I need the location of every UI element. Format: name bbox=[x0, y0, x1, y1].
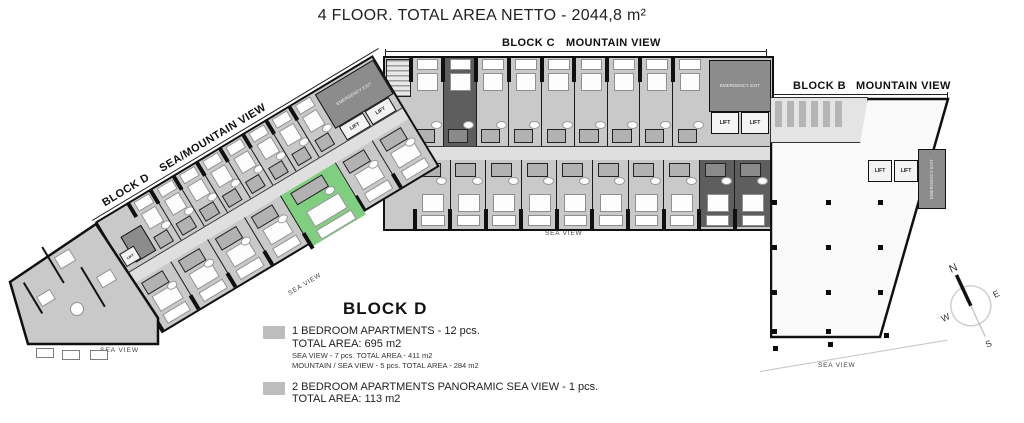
bathroom bbox=[527, 163, 548, 177]
apartment-unit bbox=[508, 58, 541, 146]
legend-line: 1 BEDROOM APARTMENTS - 12 pcs. bbox=[292, 325, 480, 338]
bathroom bbox=[705, 163, 726, 177]
unit-number-badge bbox=[529, 121, 540, 129]
legend-swatch bbox=[263, 326, 285, 339]
bed bbox=[671, 194, 693, 212]
legend-title: BLOCK D bbox=[343, 299, 683, 319]
column bbox=[878, 200, 883, 205]
legend-subline: MOUNTAIN / SEA VIEW - 5 pcs. TOTAL AREA … bbox=[292, 361, 480, 372]
bathroom bbox=[481, 129, 500, 143]
unit-number-badge bbox=[757, 177, 768, 185]
apartment-unit bbox=[639, 58, 672, 146]
unit-number-badge bbox=[686, 177, 697, 185]
lift-label: LIFT bbox=[875, 168, 886, 174]
unit-number-badge bbox=[693, 121, 704, 129]
compass-icon: N S E W bbox=[928, 256, 1012, 352]
balcony bbox=[515, 59, 537, 70]
block-c-bottom-unit-row bbox=[415, 160, 770, 227]
bed bbox=[458, 194, 480, 212]
bathroom bbox=[669, 163, 690, 177]
bed bbox=[600, 194, 622, 212]
unit-number-badge bbox=[472, 177, 483, 185]
compass-north-label: N bbox=[947, 262, 959, 276]
lift-label: LIFT bbox=[720, 120, 731, 126]
column bbox=[878, 245, 883, 250]
bathroom bbox=[455, 163, 476, 177]
lift: LIFT bbox=[894, 160, 918, 182]
balcony bbox=[742, 215, 765, 226]
column bbox=[826, 200, 831, 205]
block-b-view-label: MOUNTAIN VIEW bbox=[856, 80, 951, 92]
bed bbox=[564, 194, 586, 212]
lift-label: LIFT bbox=[349, 121, 361, 132]
emergency-exit-room: EMERGENCY EXIT bbox=[709, 60, 771, 112]
page-title: 4 FLOOR. TOTAL AREA NETTO - 2044,8 m² bbox=[0, 7, 964, 25]
bed bbox=[548, 73, 568, 91]
bed bbox=[647, 73, 667, 91]
balcony bbox=[646, 59, 668, 70]
balcony bbox=[528, 215, 551, 226]
block-c-sea-view-label: SEA VIEW bbox=[545, 230, 582, 237]
unit-number-badge bbox=[721, 177, 732, 185]
lift: LIFT bbox=[868, 160, 892, 182]
compass-east-label: E bbox=[991, 288, 1001, 300]
block-d-west-wing bbox=[8, 222, 160, 346]
balcony bbox=[450, 59, 472, 70]
block-c-view-label: MOUNTAIN VIEW bbox=[566, 37, 661, 49]
balcony bbox=[635, 215, 658, 226]
apartment-unit bbox=[574, 58, 607, 146]
balcony bbox=[548, 59, 570, 70]
bed bbox=[742, 194, 764, 212]
bathroom bbox=[740, 163, 761, 177]
lift: LIFT bbox=[711, 112, 739, 134]
unit-number-badge bbox=[463, 121, 474, 129]
bed bbox=[422, 194, 444, 212]
bed bbox=[450, 73, 470, 91]
unit-number-badge bbox=[650, 177, 661, 185]
block-c-top-unit-row bbox=[411, 58, 705, 146]
unit-number-badge bbox=[431, 121, 442, 129]
unit-number-badge bbox=[660, 121, 671, 129]
compass-west-label: W bbox=[940, 311, 952, 324]
balcony bbox=[581, 59, 603, 70]
apartment-unit bbox=[592, 160, 628, 227]
column bbox=[773, 346, 778, 351]
apartment-unit bbox=[628, 160, 664, 227]
balcony bbox=[679, 59, 701, 70]
emergency-exit-room: EMERGENCY EXIT bbox=[918, 149, 946, 209]
column bbox=[878, 290, 883, 295]
apartment-unit bbox=[476, 58, 509, 146]
floor-plan-canvas: 4 FLOOR. TOTAL AREA NETTO - 2044,8 m² BL… bbox=[0, 0, 1024, 423]
balcony bbox=[421, 215, 444, 226]
column bbox=[828, 342, 833, 347]
block-c-name: BLOCK C bbox=[502, 37, 555, 49]
block-c-bracket-line bbox=[385, 51, 767, 52]
legend-subline: SEA VIEW - 7 pcs. TOTAL AREA - 411 m2 bbox=[292, 351, 480, 362]
apartment-unit bbox=[485, 160, 521, 227]
apartment-unit bbox=[443, 58, 476, 146]
bed bbox=[417, 73, 437, 91]
apartment-unit bbox=[556, 160, 592, 227]
balcony bbox=[670, 215, 693, 226]
bathroom bbox=[514, 129, 533, 143]
balcony bbox=[492, 215, 515, 226]
apartment-unit bbox=[734, 160, 770, 227]
bed bbox=[707, 194, 729, 212]
column bbox=[772, 200, 777, 205]
bed bbox=[614, 73, 634, 91]
column bbox=[826, 290, 831, 295]
block-b-bracket-line bbox=[772, 94, 948, 95]
balcony bbox=[599, 215, 622, 226]
unit-number-badge bbox=[496, 121, 507, 129]
bed bbox=[581, 73, 601, 91]
emergency-exit-label: EMERGENCY EXIT bbox=[929, 159, 934, 199]
block-b-sea-view-label: SEA VIEW bbox=[818, 362, 855, 369]
bed bbox=[680, 73, 700, 91]
bathroom bbox=[678, 129, 697, 143]
block-b-building: ADMINISTRATION LIFT LIFT EMERGENCY EXIT bbox=[770, 97, 950, 339]
column bbox=[826, 245, 831, 250]
apartment-unit bbox=[699, 160, 735, 227]
unit-number-badge bbox=[579, 177, 590, 185]
balcony bbox=[613, 59, 635, 70]
bathroom bbox=[562, 163, 583, 177]
unit-number-badge bbox=[614, 177, 625, 185]
bed bbox=[516, 73, 536, 91]
office-desks bbox=[775, 101, 847, 127]
unit-number-badge bbox=[508, 177, 519, 185]
bed bbox=[635, 194, 657, 212]
legend-line: 2 BEDROOM APARTMENTS PANORAMIC SEA VIEW … bbox=[292, 381, 598, 394]
apartment-unit bbox=[541, 58, 574, 146]
legend-item-1br: 1 BEDROOM APARTMENTS - 12 pcs. TOTAL ARE… bbox=[263, 325, 683, 372]
apartment-unit bbox=[672, 58, 705, 146]
lift: LIFT bbox=[741, 112, 769, 134]
column bbox=[826, 329, 831, 334]
apartment-unit bbox=[521, 160, 557, 227]
compass-south-label: S bbox=[984, 338, 994, 350]
block-d-sea-view-label-diagonal: SEA VIEW bbox=[287, 272, 323, 297]
bed bbox=[483, 73, 503, 91]
apartment-unit bbox=[450, 160, 486, 227]
legend-line: TOTAL AREA: 695 m2 bbox=[292, 338, 480, 351]
column bbox=[772, 329, 777, 334]
bathroom bbox=[448, 129, 467, 143]
balcony bbox=[457, 215, 480, 226]
unit-number-badge bbox=[562, 121, 573, 129]
block-b-name: BLOCK B bbox=[793, 80, 846, 92]
balcony bbox=[482, 59, 504, 70]
bed bbox=[493, 194, 515, 212]
unit-number-badge bbox=[595, 121, 606, 129]
bathroom bbox=[612, 129, 631, 143]
apartment-unit bbox=[607, 58, 640, 146]
emergency-exit-label: EMERGENCY EXIT bbox=[336, 82, 373, 107]
balcony bbox=[417, 59, 439, 70]
unit-number-badge bbox=[436, 177, 447, 185]
balcony bbox=[564, 215, 587, 226]
unit-number-badge bbox=[627, 121, 638, 129]
bathroom bbox=[633, 163, 654, 177]
block-c-building: EMERGENCY EXIT LIFT LIFT bbox=[383, 56, 774, 231]
balcony bbox=[706, 215, 729, 226]
column bbox=[772, 245, 777, 250]
legend-item-2br: 2 BEDROOM APARTMENTS PANORAMIC SEA VIEW … bbox=[263, 381, 683, 407]
bathroom bbox=[491, 163, 512, 177]
bathroom bbox=[598, 163, 619, 177]
balcony bbox=[36, 348, 54, 358]
bathroom bbox=[579, 129, 598, 143]
column bbox=[772, 290, 777, 295]
legend-swatch bbox=[263, 382, 285, 395]
legend: BLOCK D 1 BEDROOM APARTMENTS - 12 pcs. T… bbox=[263, 299, 683, 416]
unit-number-badge bbox=[543, 177, 554, 185]
administration-room: ADMINISTRATION bbox=[770, 97, 868, 143]
bed bbox=[529, 194, 551, 212]
bathroom bbox=[645, 129, 664, 143]
west-wing-outline bbox=[8, 222, 160, 346]
lift-label: LIFT bbox=[375, 106, 387, 117]
lift-label: LIFT bbox=[901, 168, 912, 174]
emergency-exit-label: EMERGENCY EXIT bbox=[720, 83, 760, 88]
balcony bbox=[90, 350, 108, 360]
apartment-unit bbox=[663, 160, 699, 227]
legend-line: TOTAL AREA: 113 m2 bbox=[292, 393, 598, 406]
balcony bbox=[62, 350, 80, 360]
bathroom bbox=[547, 129, 566, 143]
lift-label: LIFT bbox=[750, 120, 761, 126]
